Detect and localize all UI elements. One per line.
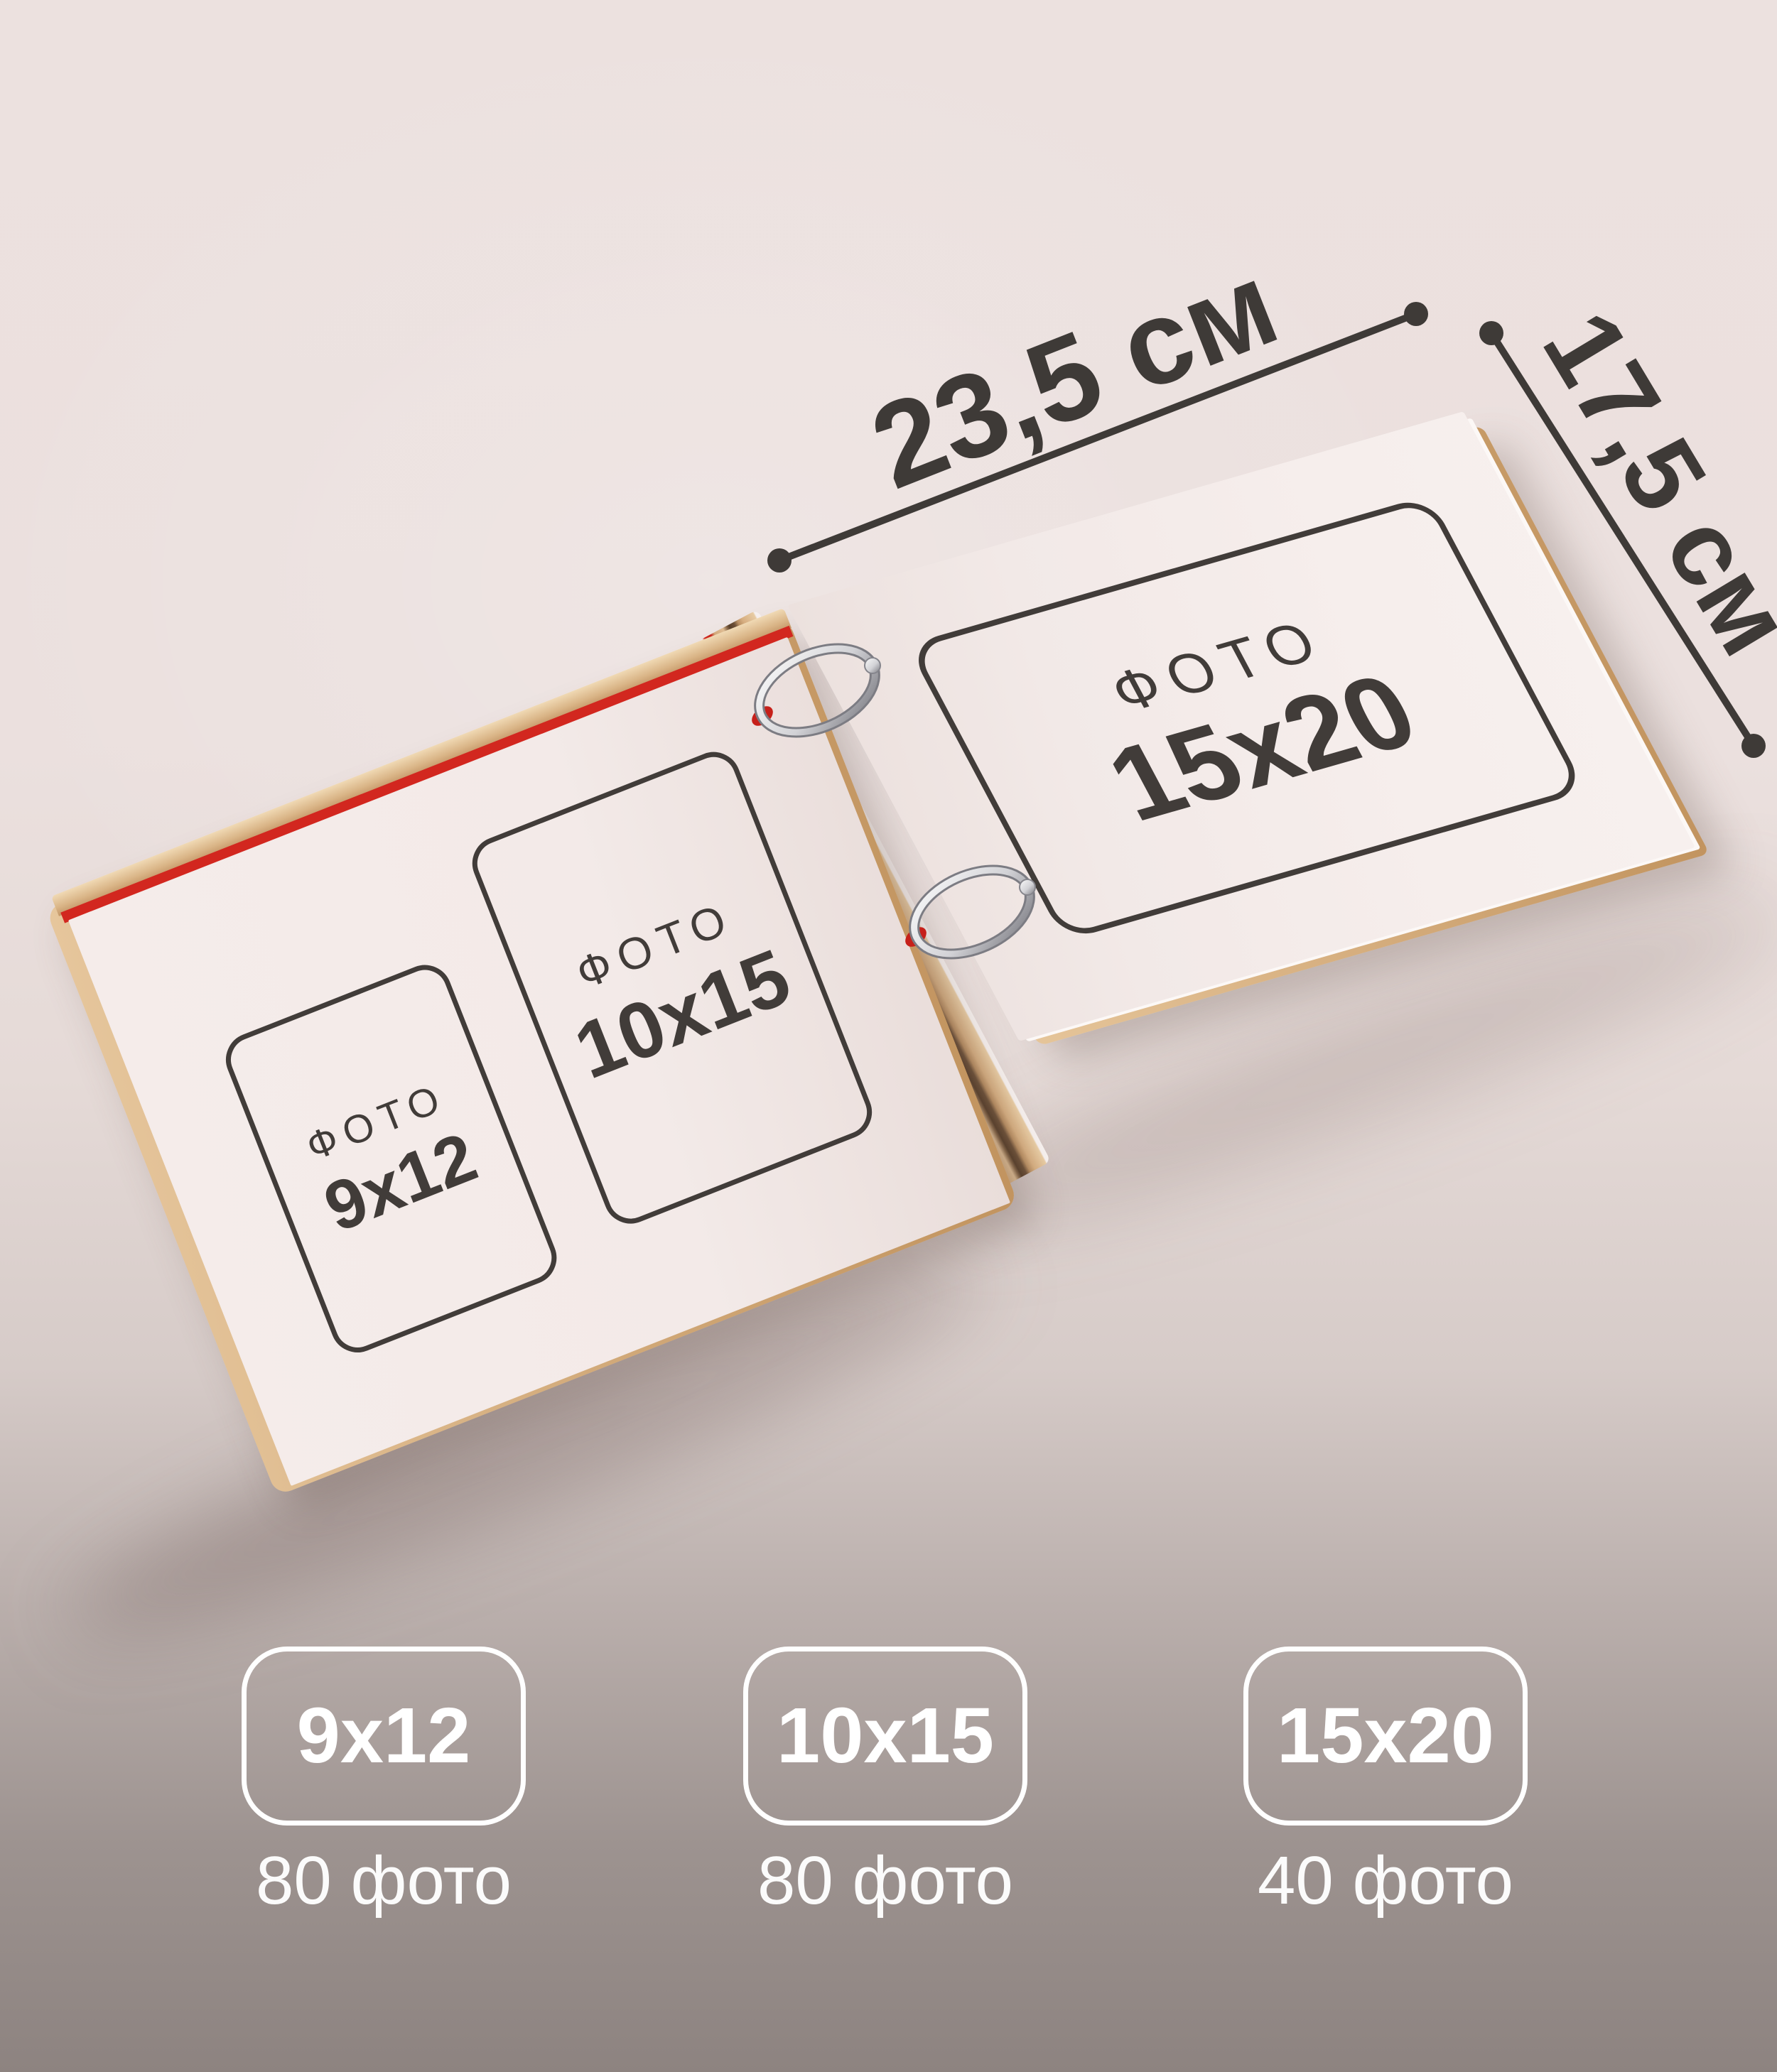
photo-slot-10x15: ФОТО 10x15 <box>465 744 880 1232</box>
product-photo: ФОТО 9x12 ФОТО 10x15 ФОТО 15x20 <box>0 0 1777 2072</box>
badge-capacity-9x12: 80 фото <box>242 1847 526 1915</box>
badge-capacity-15x20: 40 фото <box>1243 1847 1528 1915</box>
photo-slot-9x12: ФОТО 9x12 <box>218 957 565 1360</box>
photo-slot-15x20: ФОТО 15x20 <box>907 495 1587 941</box>
badge-capacity-10x15: 80 фото <box>743 1847 1027 1915</box>
badge-size-label: 10x15 <box>777 1697 994 1775</box>
badge-size-label: 15x20 <box>1277 1697 1494 1775</box>
badge-9x12: 9x12 <box>242 1647 526 1826</box>
width-dimension-label: 23,5 см <box>857 242 1292 507</box>
badge-size-label: 9x12 <box>297 1697 471 1775</box>
badge-15x20: 15x20 <box>1243 1647 1528 1826</box>
badge-10x15: 10x15 <box>743 1647 1027 1826</box>
